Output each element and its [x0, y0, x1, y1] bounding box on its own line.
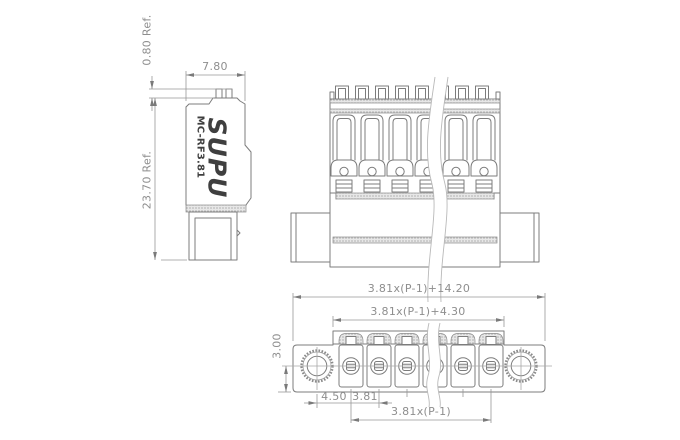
front-view: [291, 77, 539, 302]
dim-height-ref: 23.70 Ref.: [141, 98, 188, 260]
side-hatch-band: [186, 205, 246, 212]
front-flange-left: [291, 213, 330, 262]
dim-top-ref-label: 0.80 Ref.: [141, 14, 154, 65]
dim-width-label: 7.80: [202, 60, 228, 73]
dim-pin-span: 3.81x(P-1): [351, 405, 491, 420]
side-bottom-block: [189, 212, 237, 260]
dim-pin-span-label: 3.81x(P-1): [391, 405, 451, 418]
front-latch-tabs: [336, 86, 489, 99]
front-shelf-band: [336, 193, 494, 199]
dim-edge-label: 4.50: [321, 390, 347, 403]
side-latch-tab: [216, 89, 222, 98]
front-positions: [331, 115, 497, 192]
brand-logo-text: SUPU: [203, 118, 232, 199]
dim-hole-offset-label: 3.00: [271, 333, 284, 359]
dim-height-ref-label: 23.70 Ref.: [141, 151, 154, 209]
bottom-view: 3.81x(P-1)+14.20 3.81x(P-1)+4.30 3.00 4: [271, 282, 553, 423]
dim-hole-offset: 3.00: [271, 333, 292, 392]
dim-housing: 3.81x(P-1)+4.30: [333, 305, 504, 327]
technical-drawing: SUPU MC-RF3.81 7.80 0.80 Ref. 23.70 Ref.: [0, 0, 680, 440]
dim-housing-label: 3.81x(P-1)+4.30: [370, 305, 465, 318]
side-view: SUPU MC-RF3.81 7.80 0.80 Ref. 23.70 Ref.: [141, 14, 252, 260]
dim-pitch-label: 3.81: [352, 390, 378, 403]
brand-model-text: MC-RF3.81: [195, 116, 206, 179]
dim-overall-label: 3.81x(P-1)+14.20: [368, 282, 470, 295]
side-latch-tab: [226, 89, 232, 98]
front-lower-band: [333, 237, 497, 243]
front-flange-right: [500, 213, 539, 262]
drawing-sheet: SUPU MC-RF3.81 7.80 0.80 Ref. 23.70 Ref.: [0, 0, 680, 440]
